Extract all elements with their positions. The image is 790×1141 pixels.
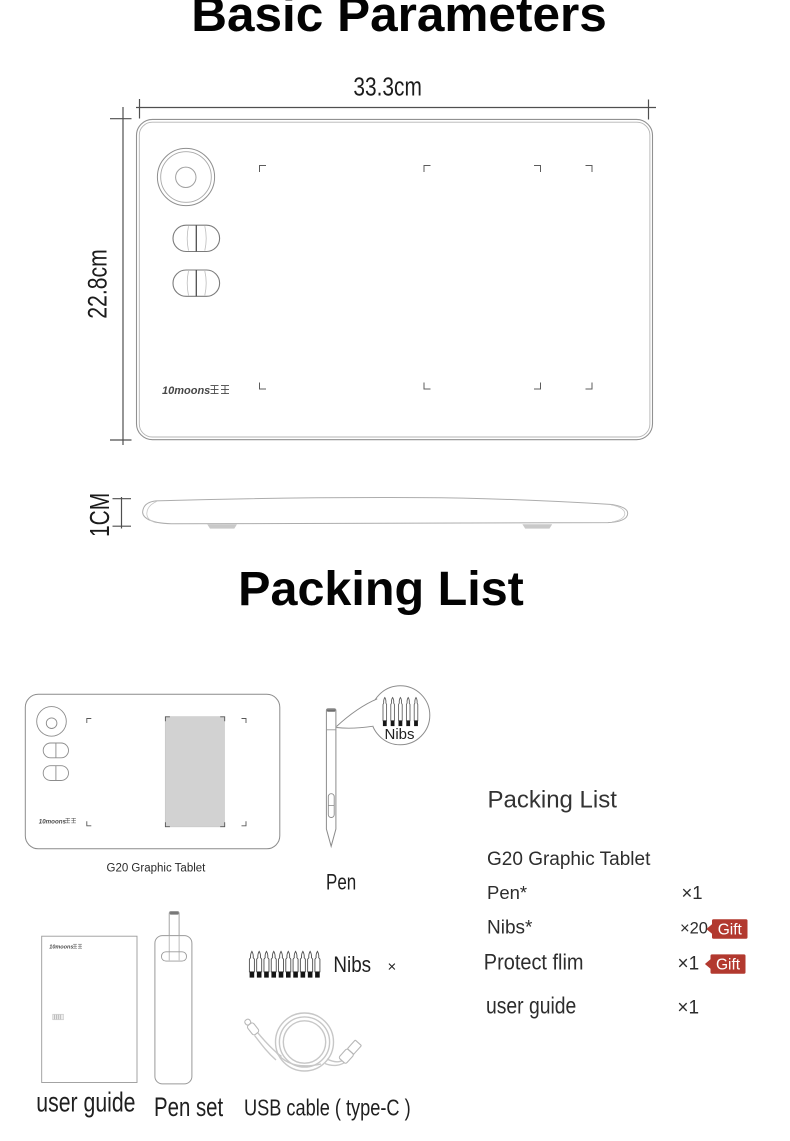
svg-text:Packing List: Packing List [488, 787, 618, 814]
svg-text:10moons: 10moons [49, 945, 73, 951]
svg-text:×1: ×1 [682, 882, 703, 903]
svg-text:G20 Graphic Tablet: G20 Graphic Tablet [487, 849, 651, 870]
svg-text:Protect flim: Protect flim [484, 951, 584, 975]
svg-text:10moons: 10moons [39, 818, 67, 825]
svg-text:Nibs*: Nibs* [487, 918, 533, 939]
svg-text:G20 Graphic Tablet: G20 Graphic Tablet [107, 863, 207, 875]
svg-text:×1: ×1 [677, 997, 699, 1018]
svg-text:user guide: user guide [36, 1088, 135, 1118]
svg-text:×20: ×20 [680, 920, 708, 938]
svg-text:USB cable ( type-C ): USB cable ( type-C ) [244, 1095, 411, 1121]
svg-text:Nibs: Nibs [333, 953, 371, 978]
svg-text:Basic Parameters: Basic Parameters [191, 0, 607, 42]
svg-text:Nibs: Nibs [385, 726, 415, 743]
svg-text:Packing List: Packing List [238, 562, 524, 616]
svg-text:33.3cm: 33.3cm [353, 72, 421, 101]
svg-text:×1: ×1 [678, 954, 700, 975]
svg-text:Pen: Pen [326, 871, 356, 896]
svg-text:×: × [388, 959, 397, 976]
svg-text:10moons: 10moons [162, 385, 210, 397]
svg-text:1CM: 1CM [85, 493, 115, 537]
svg-text:Pen set: Pen set [154, 1093, 224, 1122]
svg-text:Gift: Gift [716, 956, 741, 973]
svg-text:22.8cm: 22.8cm [83, 249, 113, 318]
svg-text:user guide: user guide [486, 993, 576, 1019]
svg-text:Gift: Gift [718, 921, 743, 938]
svg-text:Pen*: Pen* [487, 882, 527, 903]
